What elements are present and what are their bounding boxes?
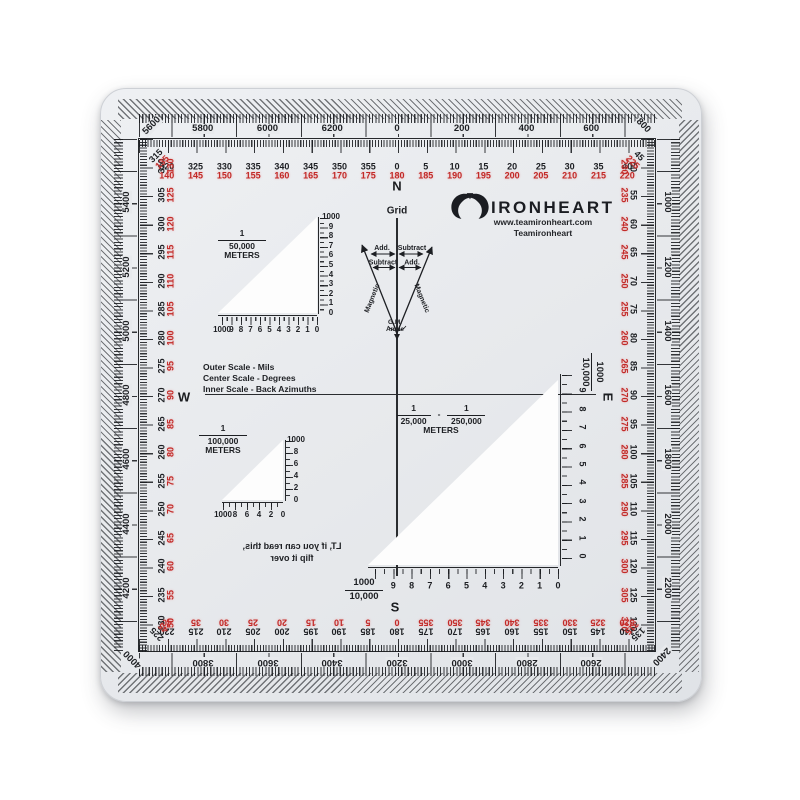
degree-value: 160 bbox=[499, 627, 525, 636]
degree-pair: 165345 bbox=[470, 618, 496, 635]
back-azimuth-value: 100 bbox=[166, 325, 175, 351]
degree-pair: 26080 bbox=[157, 439, 174, 465]
back-azimuth-value: 205 bbox=[528, 171, 554, 180]
grid-label: Grid bbox=[387, 206, 408, 217]
back-azimuth-value: 215 bbox=[585, 171, 611, 180]
back-azimuth-value: 285 bbox=[620, 468, 629, 494]
degree-value: 170 bbox=[442, 627, 468, 636]
ruler-50k-bottom-number: 5 bbox=[267, 326, 271, 334]
degree-pair: 20020 bbox=[269, 618, 295, 635]
degree-pair: 27595 bbox=[157, 353, 174, 379]
ruler-25k-side-number: 1 bbox=[578, 535, 587, 540]
back-azimuth-value: 85 bbox=[166, 411, 175, 437]
ruler-25k-bottom-number: 0 bbox=[555, 582, 560, 591]
degree-value: 95 bbox=[629, 411, 638, 437]
mils-label: 6200 bbox=[321, 124, 344, 134]
ruler-50k-bottom-ticks bbox=[222, 317, 318, 326]
back-azimuth-value: 10 bbox=[326, 618, 352, 627]
degree-pair: 295115 bbox=[157, 239, 174, 265]
back-azimuth-value: 115 bbox=[166, 239, 175, 265]
ruler-25k-side-number: 0 bbox=[578, 553, 587, 558]
inner-band-bottom bbox=[139, 639, 655, 652]
ruler-25k-side-number: 3 bbox=[578, 498, 587, 503]
mils-label: 3400 bbox=[321, 657, 344, 667]
back-azimuth-value: 125 bbox=[166, 182, 175, 208]
back-azimuth-value: 185 bbox=[413, 171, 439, 180]
degree-pair: 95275 bbox=[620, 411, 637, 437]
mils-label: 200 bbox=[453, 124, 471, 134]
ruler-50k-bottom-number: 9 bbox=[229, 326, 233, 334]
hatch-edge-right bbox=[679, 120, 699, 672]
ruler-25k-bottom-number: 6 bbox=[446, 582, 451, 591]
degree-pair: 5185 bbox=[413, 162, 439, 179]
back-azimuth-value: 300 bbox=[620, 553, 629, 579]
back-azimuth-value: 190 bbox=[442, 171, 468, 180]
degree-pair: 330150 bbox=[211, 162, 237, 179]
degree-pair: 85265 bbox=[620, 353, 637, 379]
back-azimuth-value: 355 bbox=[413, 618, 439, 627]
back-azimuth-value: 90 bbox=[166, 382, 175, 408]
degree-value: 180 bbox=[384, 627, 410, 636]
degree-pair: 19515 bbox=[298, 618, 324, 635]
mils-label: 4800 bbox=[122, 383, 132, 406]
back-azimuth-value: 120 bbox=[166, 211, 175, 237]
back-azimuth-value: 65 bbox=[166, 525, 175, 551]
mils-label: 5000 bbox=[122, 319, 132, 342]
degree-pair: 170350 bbox=[442, 618, 468, 635]
mils-label: 3800 bbox=[191, 657, 214, 667]
scale-25k-bottom-fraction: 100010,000 bbox=[343, 578, 385, 602]
mils-label: 2200 bbox=[662, 576, 672, 599]
back-azimuth-value: 150 bbox=[211, 171, 237, 180]
ruler-50k-side-number: 4 bbox=[329, 271, 333, 279]
ruler-25k-bottom-number: 1 bbox=[537, 582, 542, 591]
ruler-100k-side-ticks bbox=[286, 441, 293, 501]
mils-label: 4400 bbox=[122, 512, 132, 535]
back-azimuth-value: 0 bbox=[384, 618, 410, 627]
degree-pair: 110290 bbox=[620, 496, 637, 522]
degree-pair: 27090 bbox=[157, 382, 174, 408]
ruler-100k-bottom-number: 4 bbox=[257, 511, 261, 519]
ruler-100k-side-number: 1000 bbox=[287, 436, 305, 444]
mils-label: 0 bbox=[393, 124, 400, 134]
back-azimuth-value: 110 bbox=[166, 268, 175, 294]
back-azimuth-value: 25 bbox=[240, 618, 266, 627]
ruler-50k-bottom-number: 0 bbox=[315, 326, 319, 334]
hatch-edge-bottom bbox=[118, 673, 682, 693]
ruler-100k-side-number: 8 bbox=[294, 448, 298, 456]
degree-pair: 145325 bbox=[585, 618, 611, 635]
back-azimuth-value: 60 bbox=[166, 553, 175, 579]
degree-value: 195 bbox=[298, 627, 324, 636]
inner-band-right bbox=[641, 139, 654, 651]
compass-east: E bbox=[602, 393, 615, 402]
inner-band-top bbox=[139, 140, 655, 153]
degree-value: 100 bbox=[629, 439, 638, 465]
ruler-50k-side-number: 1000 bbox=[322, 213, 340, 221]
degree-pair: 25070 bbox=[157, 496, 174, 522]
ruler-25k-bottom-number: 2 bbox=[519, 582, 524, 591]
ruler-100k-side-number: 2 bbox=[294, 484, 298, 492]
ruler-25k-side-ticks bbox=[562, 375, 572, 566]
inner-band-left-ticks bbox=[140, 139, 153, 651]
degree-value: 185 bbox=[355, 627, 381, 636]
degree-value: 90 bbox=[629, 382, 638, 408]
back-azimuth-value: 35 bbox=[183, 618, 209, 627]
inner-band-right-ticks bbox=[641, 139, 654, 651]
degree-value: 150 bbox=[557, 627, 583, 636]
degree-pair: 20200 bbox=[499, 162, 525, 179]
degree-pair: 105285 bbox=[620, 468, 637, 494]
back-azimuth-value: 70 bbox=[166, 496, 175, 522]
gm-angle-label-1: G.M. bbox=[388, 319, 402, 326]
ruler-25k-side-number: 5 bbox=[578, 461, 587, 466]
back-azimuth-value: 255 bbox=[620, 296, 629, 322]
degree-pair: 150330 bbox=[557, 618, 583, 635]
degree-pair: 24565 bbox=[157, 525, 174, 551]
ruler-100k-bottom-number: 2 bbox=[269, 511, 273, 519]
brand-url: www.teamironheart.com bbox=[494, 217, 592, 227]
mils-label: 3200 bbox=[385, 657, 408, 667]
ruler-50k-side-number: 7 bbox=[329, 242, 333, 250]
back-azimuth-value: 240 bbox=[620, 211, 629, 237]
ruler-50k-side-ticks bbox=[320, 218, 329, 314]
mils-label: 1000 bbox=[662, 191, 672, 214]
degree-pair: 160340 bbox=[499, 618, 525, 635]
mils-label: 4600 bbox=[122, 448, 132, 471]
degree-value: 190 bbox=[326, 627, 352, 636]
compass-west: W bbox=[178, 391, 190, 404]
degree-value: 215 bbox=[183, 627, 209, 636]
back-azimuth-value: 340 bbox=[499, 618, 525, 627]
degree-value: 85 bbox=[629, 353, 638, 379]
degree-pair: 10190 bbox=[442, 162, 468, 179]
degree-pair: 55235 bbox=[620, 182, 637, 208]
back-azimuth-value: 210 bbox=[557, 171, 583, 180]
degree-pair: 25205 bbox=[528, 162, 554, 179]
degree-pair: 24060 bbox=[157, 553, 174, 579]
inner-band-bottom-ticks bbox=[139, 639, 655, 652]
degree-pair: 65245 bbox=[620, 239, 637, 265]
back-azimuth-value: 95 bbox=[166, 353, 175, 379]
scale-25k-side-fraction: 100010,000 bbox=[580, 351, 604, 393]
degree-value: 60 bbox=[629, 211, 638, 237]
degree-pair: 1800 bbox=[384, 618, 410, 635]
degree-value: 80 bbox=[629, 325, 638, 351]
ruler-100k-bottom bbox=[223, 503, 283, 510]
ruler-25k-bottom-number: 4 bbox=[482, 582, 487, 591]
back-azimuth-value: 145 bbox=[183, 171, 209, 180]
back-azimuth-value: 305 bbox=[620, 582, 629, 608]
ruler-50k-bottom-number: 6 bbox=[258, 326, 262, 334]
back-azimuth-value: 195 bbox=[470, 171, 496, 180]
mils-label: 5800 bbox=[191, 124, 214, 134]
degree-pair: 15195 bbox=[470, 162, 496, 179]
back-azimuth-value: 265 bbox=[620, 353, 629, 379]
back-azimuth-value: 330 bbox=[557, 618, 583, 627]
ruler-50k-bottom-number: 8 bbox=[239, 326, 243, 334]
compass-south: S bbox=[391, 601, 400, 614]
degree-value: 70 bbox=[629, 268, 638, 294]
mils-label: 1400 bbox=[662, 319, 672, 342]
ruler-100k-bottom-ticks bbox=[223, 503, 283, 510]
back-azimuth-value: 260 bbox=[620, 325, 629, 351]
back-azimuth-value: 105 bbox=[166, 296, 175, 322]
back-azimuth-value: 30 bbox=[211, 618, 237, 627]
ruler-100k-side-number: 4 bbox=[294, 472, 298, 480]
back-azimuth-value: 170 bbox=[326, 171, 352, 180]
ruler-50k-side-number: 0 bbox=[329, 309, 333, 317]
degree-pair: 175355 bbox=[413, 618, 439, 635]
mils-label: 5400 bbox=[122, 191, 132, 214]
scale-note-inner: Inner Scale - Back Azimuths bbox=[203, 384, 317, 395]
brand-social: Teamironheart bbox=[514, 228, 572, 238]
ruler-50k-bottom-number: 1000 bbox=[213, 326, 231, 334]
degree-value: 65 bbox=[629, 239, 638, 265]
mils-label: 3000 bbox=[450, 657, 473, 667]
degree-pair: 335155 bbox=[240, 162, 266, 179]
back-azimuth-value: 250 bbox=[620, 268, 629, 294]
degree-pair: 285105 bbox=[157, 296, 174, 322]
mils-label: 1200 bbox=[662, 255, 672, 278]
ruler-25k-side-number: 4 bbox=[578, 480, 587, 485]
mils-label: 1800 bbox=[662, 448, 672, 471]
degree-pair: 300120 bbox=[157, 211, 174, 237]
degree-pair: 20525 bbox=[240, 618, 266, 635]
mils-label: 4200 bbox=[122, 576, 132, 599]
back-azimuth-value: 295 bbox=[620, 525, 629, 551]
mils-label: 2000 bbox=[662, 512, 672, 535]
back-azimuth-value: 20 bbox=[269, 618, 295, 627]
ruler-100k-side-number: 0 bbox=[294, 496, 298, 504]
back-azimuth-value: 235 bbox=[620, 182, 629, 208]
degree-pair: 290110 bbox=[157, 268, 174, 294]
ruler-50k-side-number: 6 bbox=[329, 251, 333, 259]
degree-pair: 23555 bbox=[157, 582, 174, 608]
ruler-50k-bottom-number: 3 bbox=[286, 326, 290, 334]
degree-pair: 80260 bbox=[620, 325, 637, 351]
degree-value: 175 bbox=[413, 627, 439, 636]
back-azimuth-value: 245 bbox=[620, 239, 629, 265]
ruler-25k-bottom-ticks bbox=[375, 569, 559, 579]
degree-pair: 305125 bbox=[157, 182, 174, 208]
declination-subtract-top: Subtract bbox=[398, 245, 427, 252]
ironheart-logo-icon bbox=[449, 191, 491, 222]
ruler-25k-side-number: 8 bbox=[578, 406, 587, 411]
back-azimuth-value: 290 bbox=[620, 496, 629, 522]
ruler-100k-bottom-number: 1000 bbox=[214, 511, 232, 519]
degree-pair: 26585 bbox=[157, 411, 174, 437]
ruler-50k-bottom-number: 4 bbox=[277, 326, 281, 334]
degree-pair: 60240 bbox=[620, 211, 637, 237]
ruler-50k-side-number: 5 bbox=[329, 261, 333, 269]
degree-pair: 21535 bbox=[183, 618, 209, 635]
ruler-50k-side-number: 1 bbox=[329, 299, 333, 307]
mils-label: 2800 bbox=[515, 657, 538, 667]
ruler-25k-side-number: 2 bbox=[578, 517, 587, 522]
back-azimuth-value: 55 bbox=[166, 582, 175, 608]
degree-pair: 30210 bbox=[557, 162, 583, 179]
degree-pair: 70250 bbox=[620, 268, 637, 294]
back-azimuth-value: 160 bbox=[269, 171, 295, 180]
degree-pair: 1855 bbox=[355, 618, 381, 635]
inner-band-top-ticks bbox=[139, 140, 655, 153]
mils-label: 1600 bbox=[662, 383, 672, 406]
declination-diagram: Add. Subtract Subtract Add. Magnetic Mag… bbox=[355, 236, 441, 342]
flip-note-mirrored: LT, if you can read this, flip it over bbox=[222, 541, 362, 564]
degree-value: 125 bbox=[629, 582, 638, 608]
back-azimuth-value: 280 bbox=[620, 439, 629, 465]
ruler-100k-bottom-number: 8 bbox=[233, 511, 237, 519]
degree-pair: 325145 bbox=[183, 162, 209, 179]
inner-band-left bbox=[140, 139, 153, 651]
back-azimuth-value: 345 bbox=[470, 618, 496, 627]
ruler-100k-side bbox=[286, 441, 293, 501]
scale-100k-label: 1100,000 METERS bbox=[197, 424, 249, 456]
scale-25k-label: 125,000 - 1250,000 METERS bbox=[394, 404, 488, 436]
degree-pair: 345165 bbox=[298, 162, 324, 179]
back-azimuth-value: 350 bbox=[442, 618, 468, 627]
mils-label: 2600 bbox=[580, 657, 603, 667]
ruler-50k-side bbox=[320, 218, 329, 314]
scale-50k-label: 150,000 METERS bbox=[216, 229, 268, 261]
degree-pair: 340160 bbox=[269, 162, 295, 179]
degree-pair: 19010 bbox=[326, 618, 352, 635]
back-azimuth-value: 165 bbox=[298, 171, 324, 180]
ruler-25k-bottom-number: 7 bbox=[427, 582, 432, 591]
degree-pair: 155335 bbox=[528, 618, 554, 635]
ruler-25k-side-number: 7 bbox=[578, 425, 587, 430]
degree-pair: 0180 bbox=[384, 162, 410, 179]
back-azimuth-value: 5 bbox=[355, 618, 381, 627]
ruler-50k-side-number: 8 bbox=[329, 232, 333, 240]
protractor-photo: 5800600062000200400600100012001400160018… bbox=[0, 0, 800, 800]
back-azimuth-value: 75 bbox=[166, 468, 175, 494]
degree-value: 105 bbox=[629, 468, 638, 494]
back-azimuth-value: 175 bbox=[355, 171, 381, 180]
ruler-50k-side-number: 2 bbox=[329, 290, 333, 298]
degree-pair: 75255 bbox=[620, 296, 637, 322]
degree-pair: 355175 bbox=[355, 162, 381, 179]
degree-pair: 25575 bbox=[157, 468, 174, 494]
compass-north: N bbox=[392, 180, 401, 193]
back-azimuth-value: 270 bbox=[620, 382, 629, 408]
degree-value: 75 bbox=[629, 296, 638, 322]
ruler-50k-bottom-number: 1 bbox=[305, 326, 309, 334]
back-azimuth-value: 200 bbox=[499, 171, 525, 180]
declination-add-top: Add. bbox=[374, 245, 390, 252]
degree-pair: 35215 bbox=[585, 162, 611, 179]
degree-value: 115 bbox=[629, 525, 638, 551]
degree-value: 155 bbox=[528, 627, 554, 636]
degree-value: 120 bbox=[629, 553, 638, 579]
degree-pair: 90270 bbox=[620, 382, 637, 408]
ruler-25k-bottom-number: 8 bbox=[409, 582, 414, 591]
ruler-50k-bottom-number: 2 bbox=[296, 326, 300, 334]
degree-value: 110 bbox=[629, 496, 638, 522]
degree-pair: 115295 bbox=[620, 525, 637, 551]
magnetic-right-label: Magnetic bbox=[412, 283, 430, 314]
ruler-25k-side bbox=[562, 375, 572, 566]
mils-label: 5200 bbox=[122, 255, 132, 278]
degree-value: 200 bbox=[269, 627, 295, 636]
mils-label: 3600 bbox=[256, 657, 279, 667]
ruler-100k-side-number: 6 bbox=[294, 460, 298, 468]
degree-pair: 100280 bbox=[620, 439, 637, 465]
degree-value: 145 bbox=[585, 627, 611, 636]
back-azimuth-value: 275 bbox=[620, 411, 629, 437]
ruler-100k-bottom-number: 6 bbox=[245, 511, 249, 519]
scale-note-center: Center Scale - Degrees bbox=[203, 373, 317, 384]
degree-pair: 280100 bbox=[157, 325, 174, 351]
back-azimuth-value: 15 bbox=[298, 618, 324, 627]
magnetic-left-label: Magnetic bbox=[364, 283, 382, 314]
ruler-25k-bottom-number: 9 bbox=[391, 582, 396, 591]
ruler-50k-side-number: 9 bbox=[329, 223, 333, 231]
ruler-25k-side-number: 6 bbox=[578, 443, 587, 448]
mils-label: 600 bbox=[582, 124, 600, 134]
ruler-100k-bottom-number: 0 bbox=[281, 511, 285, 519]
brand-name: IRONHEART bbox=[491, 198, 615, 218]
scale-note-outer: Outer Scale - Mils bbox=[203, 362, 317, 373]
ruler-50k-bottom-number: 7 bbox=[248, 326, 252, 334]
degree-pair: 350170 bbox=[326, 162, 352, 179]
degree-value: 210 bbox=[211, 627, 237, 636]
ruler-25k-bottom-number: 3 bbox=[501, 582, 506, 591]
degree-pair: 125305 bbox=[620, 582, 637, 608]
declination-subtract-mid: Subtract bbox=[369, 260, 398, 267]
degree-value: 165 bbox=[470, 627, 496, 636]
ruler-25k-bottom bbox=[375, 569, 559, 579]
scale-notes: Outer Scale - Mils Center Scale - Degree… bbox=[203, 362, 317, 395]
mils-label: 400 bbox=[518, 124, 536, 134]
back-azimuth-value: 335 bbox=[528, 618, 554, 627]
back-azimuth-value: 80 bbox=[166, 439, 175, 465]
back-azimuth-value: 155 bbox=[240, 171, 266, 180]
degree-pair: 120300 bbox=[620, 553, 637, 579]
declination-add-mid: Add. bbox=[404, 260, 420, 267]
ruler-25k-bottom-number: 5 bbox=[464, 582, 469, 591]
ruler-50k-side-number: 3 bbox=[329, 280, 333, 288]
degree-value: 55 bbox=[629, 182, 638, 208]
mils-label: 6000 bbox=[256, 124, 279, 134]
back-azimuth-value: 325 bbox=[585, 618, 611, 627]
degree-value: 205 bbox=[240, 627, 266, 636]
degree-pair: 21030 bbox=[211, 618, 237, 635]
